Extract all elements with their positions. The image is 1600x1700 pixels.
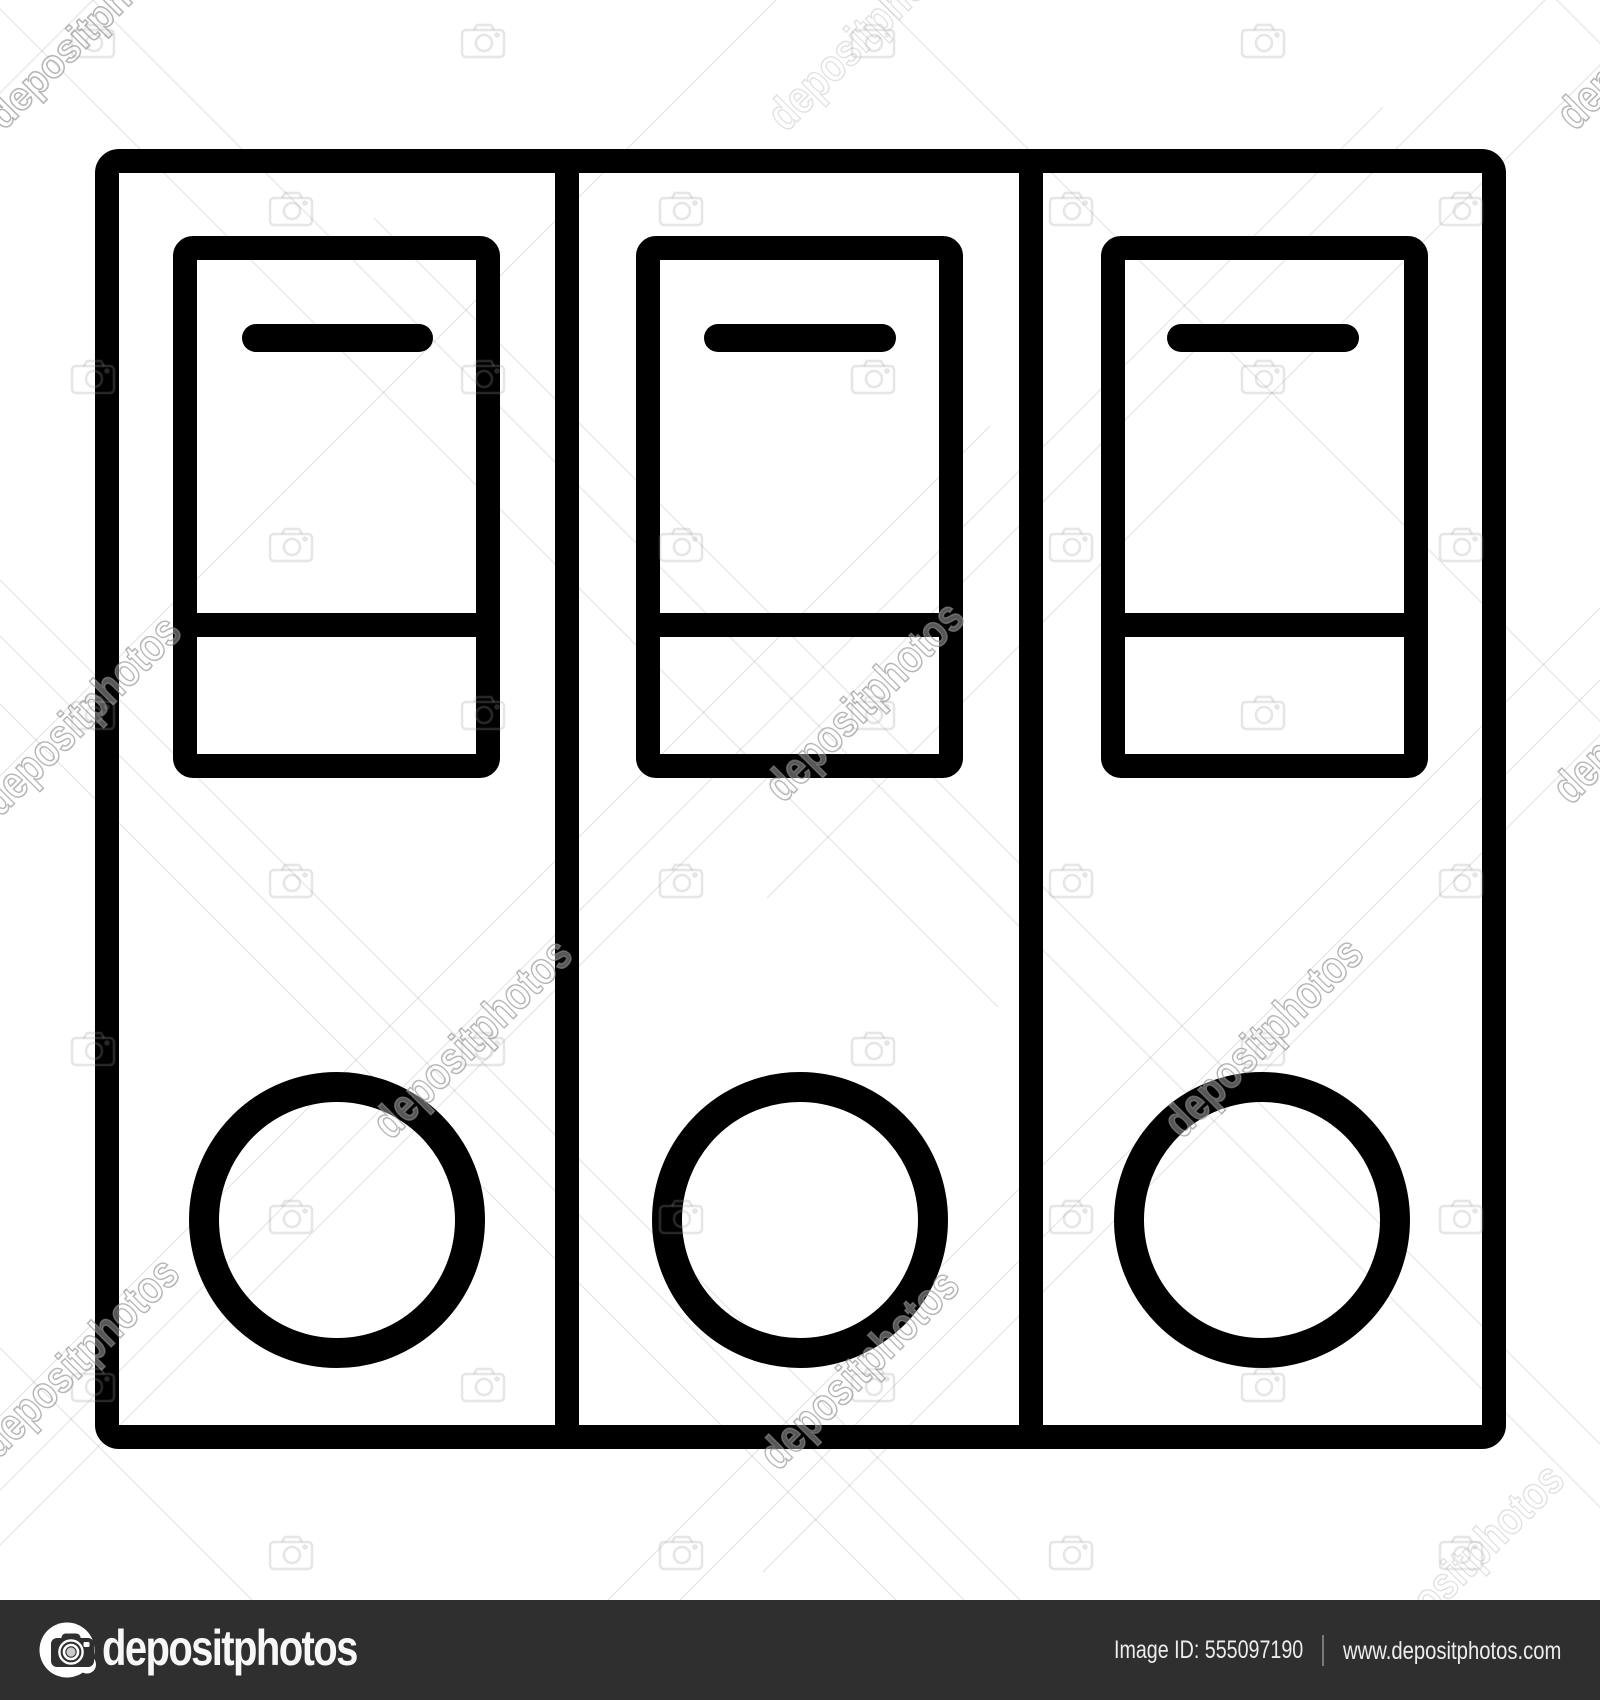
- svg-text:depositphotos: depositphotos: [756, 0, 977, 140]
- svg-text:depositphotos: depositphotos: [361, 927, 582, 1148]
- svg-text:depositphotos: depositphotos: [0, 0, 198, 137]
- svg-text:depositphotos: depositphotos: [1541, 592, 1600, 813]
- svg-text:depositphotos: depositphotos: [1545, 0, 1600, 139]
